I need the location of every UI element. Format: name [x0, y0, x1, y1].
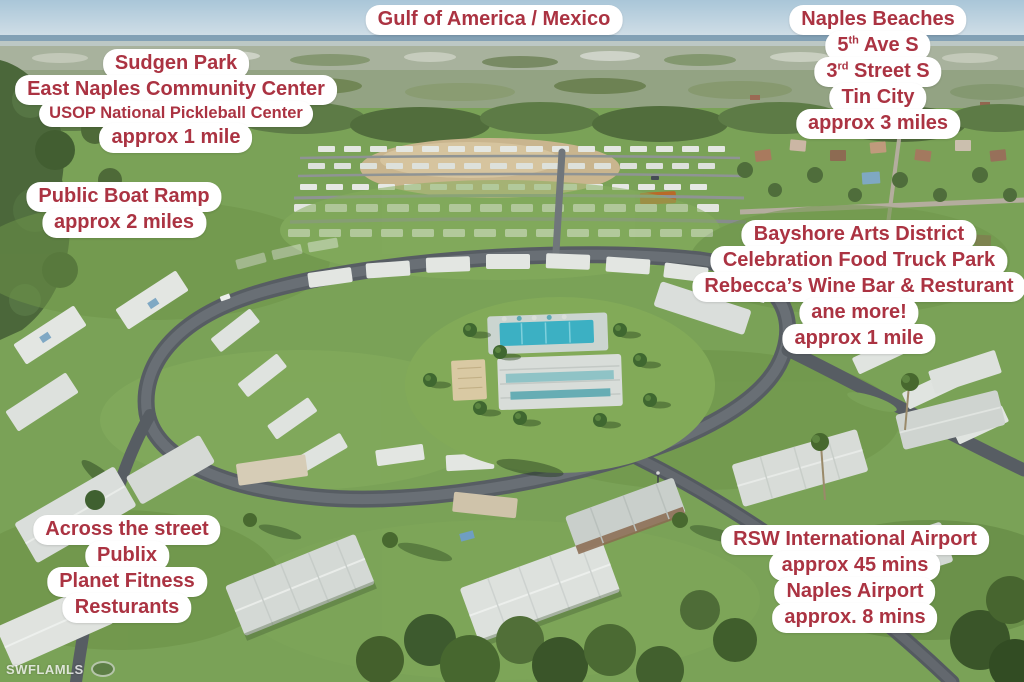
- label-gulf-of-america: Gulf of America / Mexico: [366, 7, 623, 33]
- label-line: approx 2 miles: [42, 208, 206, 238]
- label-public-boat-ramp: Public Boat Ramp approx 2 miles: [26, 184, 221, 236]
- label-naples-beaches: Naples Beaches 5th Ave S 3rd Street S Ti…: [789, 7, 966, 137]
- label-across-the-street: Across the street Publix Planet Fitness …: [33, 517, 220, 621]
- watermark-text: SWFLAMLS: [6, 662, 84, 677]
- mls-watermark: SWFLAMLS: [6, 661, 115, 677]
- mls-logo-icon: [91, 661, 115, 677]
- label-airports: RSW International Airport approx 45 mins…: [721, 527, 989, 631]
- label-sudgen-park: Sudgen Park East Naples Community Center…: [15, 51, 337, 151]
- label-line: approx 3 miles: [796, 109, 960, 139]
- label-line: Resturants: [63, 593, 191, 623]
- annotated-aerial-photo: Gulf of America / Mexico Naples Beaches …: [0, 0, 1024, 682]
- label-bayshore-arts-district: Bayshore Arts District Celebration Food …: [692, 222, 1024, 352]
- label-line: approx 1 mile: [783, 324, 936, 354]
- shuffleboard-courts: [451, 359, 487, 401]
- label-line: approx. 8 mins: [772, 603, 937, 633]
- clubhouse: [497, 354, 623, 410]
- label-line: approx 1 mile: [100, 123, 253, 153]
- community-amenities: [405, 297, 715, 473]
- label-line: Gulf of America / Mexico: [366, 5, 623, 35]
